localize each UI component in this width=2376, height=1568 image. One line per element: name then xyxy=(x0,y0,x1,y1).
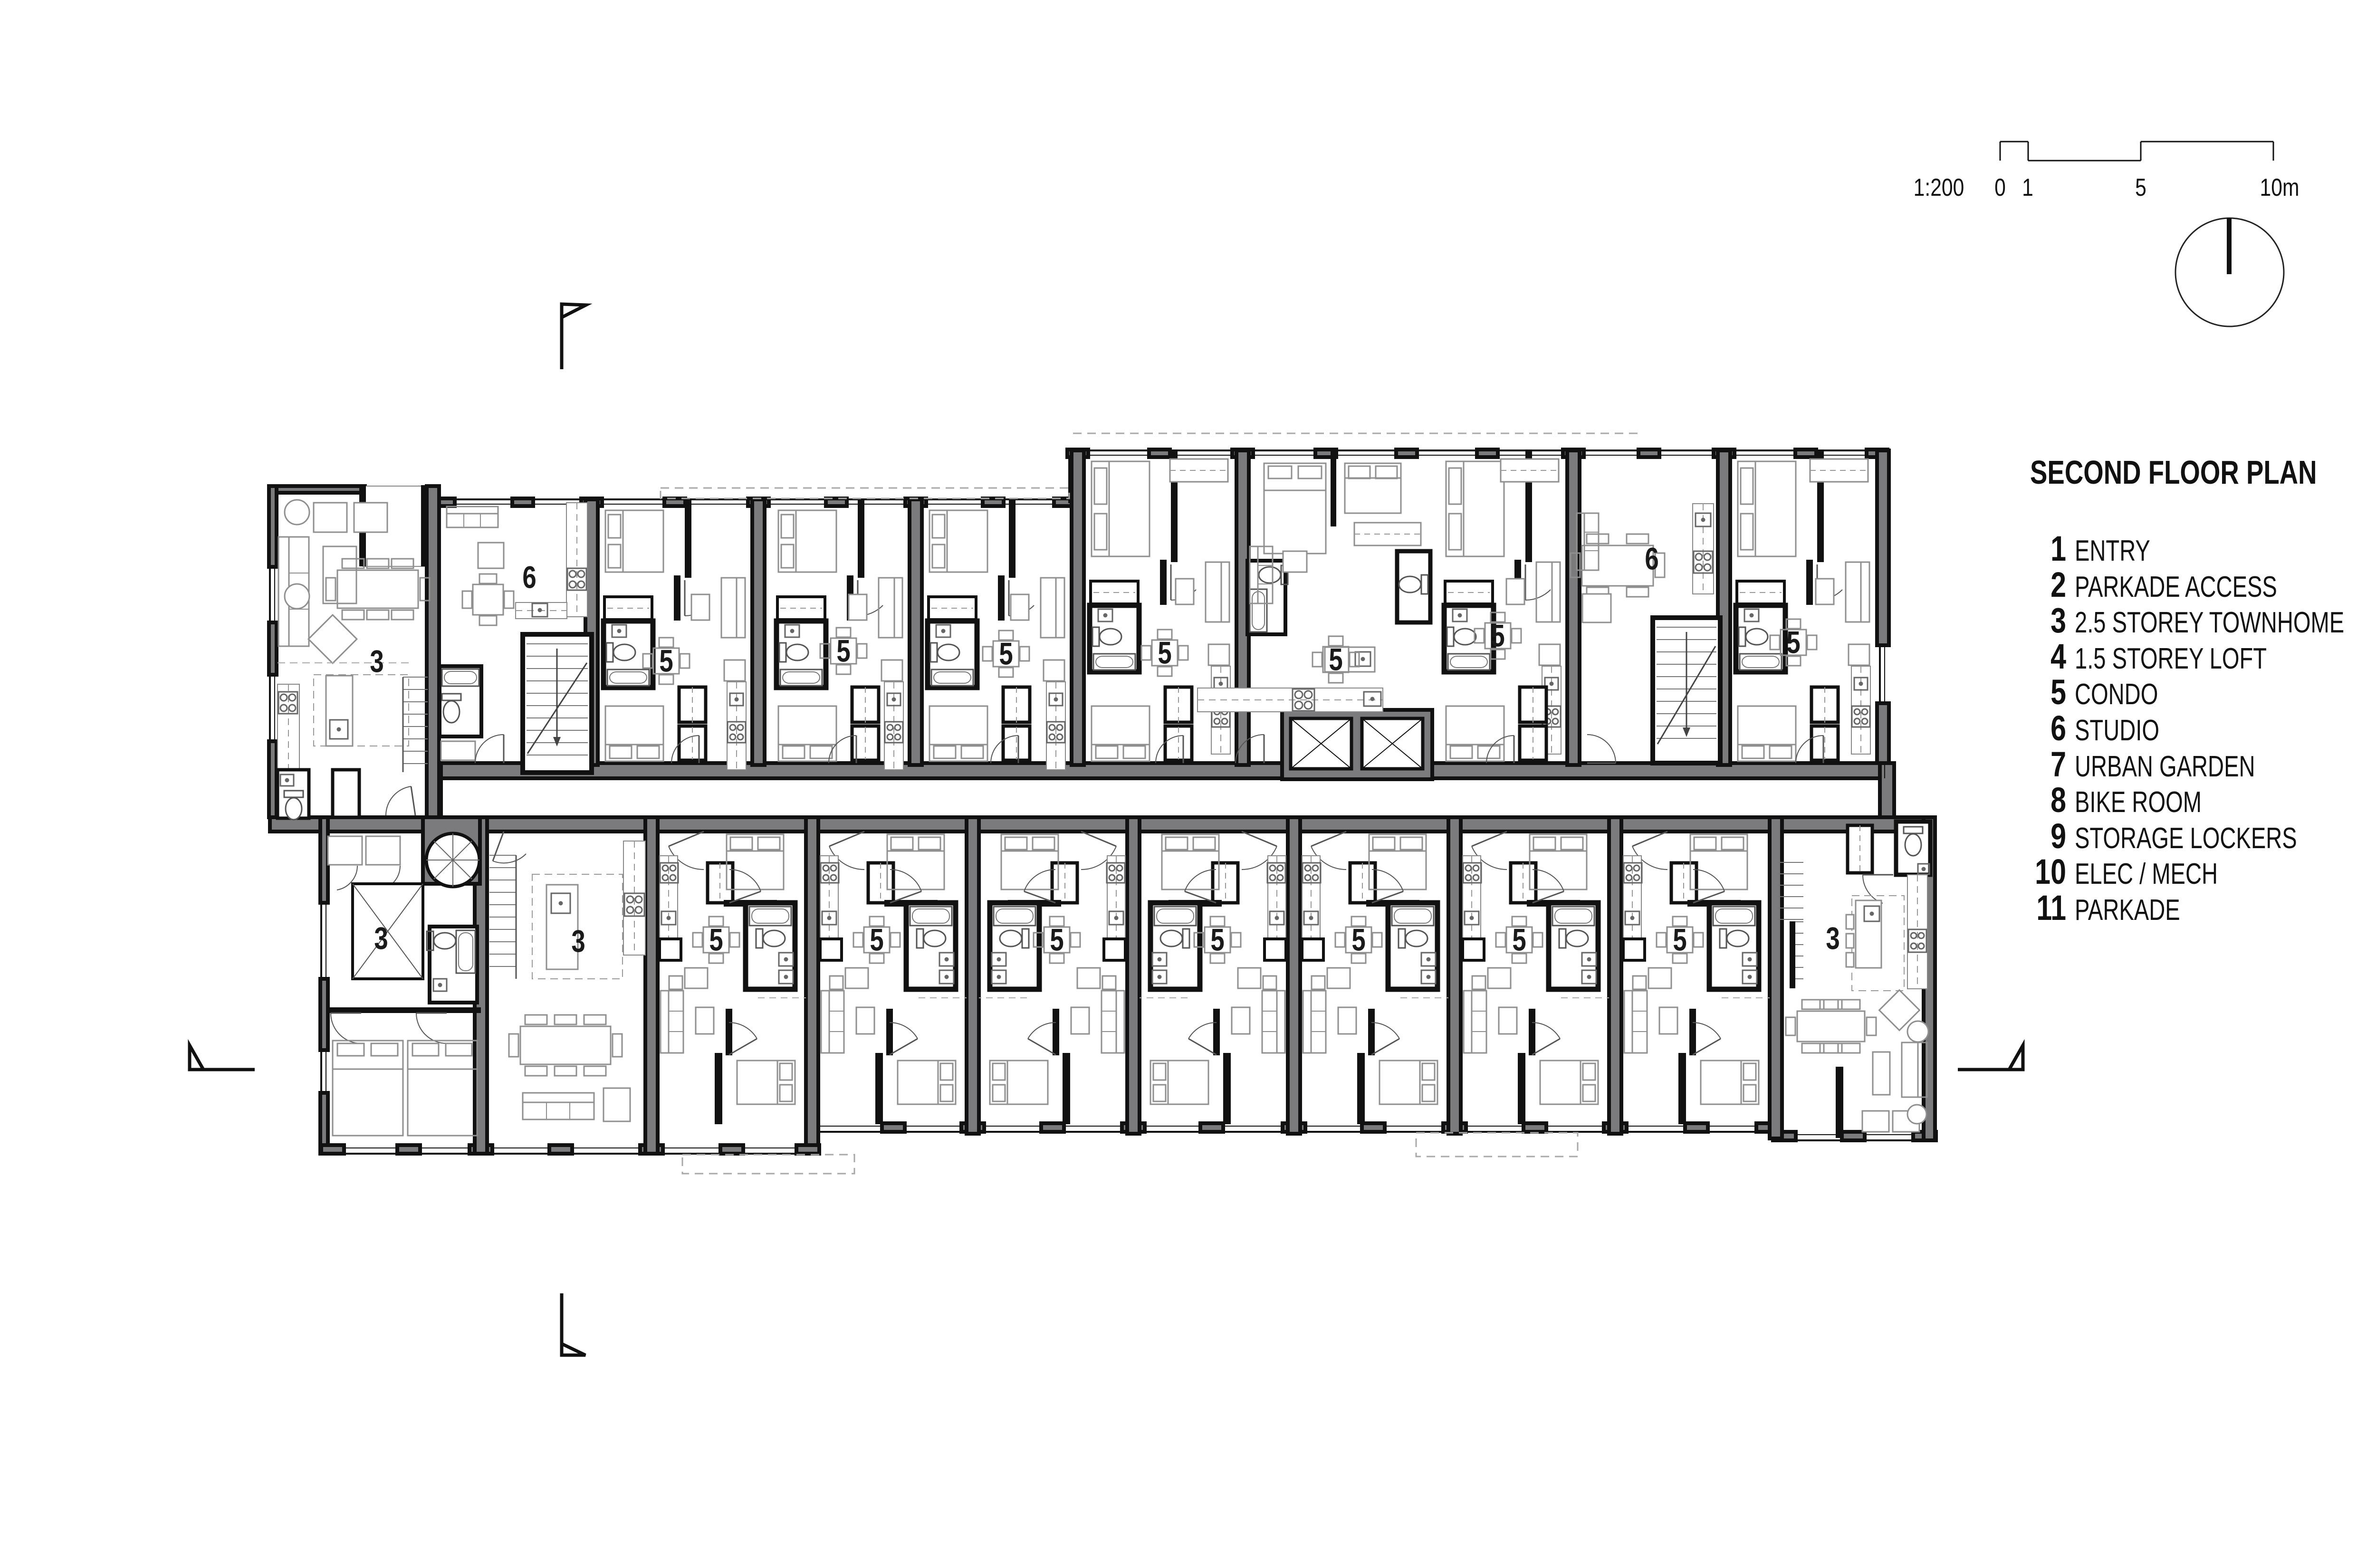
svg-text:3: 3 xyxy=(571,924,585,959)
svg-text:ENTRY: ENTRY xyxy=(2075,534,2150,567)
svg-text:6: 6 xyxy=(1645,541,1658,576)
svg-text:URBAN GARDEN: URBAN GARDEN xyxy=(2075,750,2255,783)
svg-text:5: 5 xyxy=(1786,625,1800,660)
svg-text:6: 6 xyxy=(2050,709,2066,748)
svg-text:3: 3 xyxy=(2050,601,2066,641)
svg-text:3: 3 xyxy=(370,644,383,679)
svg-text:5: 5 xyxy=(999,636,1013,671)
svg-text:5: 5 xyxy=(836,633,850,669)
svg-text:10m: 10m xyxy=(2260,174,2299,201)
svg-text:5: 5 xyxy=(1210,922,1224,957)
svg-text:1:200: 1:200 xyxy=(1914,174,1964,201)
svg-text:5: 5 xyxy=(2135,174,2146,201)
svg-text:PARKADE ACCESS: PARKADE ACCESS xyxy=(2075,570,2277,603)
svg-text:3: 3 xyxy=(1826,921,1839,956)
svg-text:0: 0 xyxy=(1994,174,2006,201)
svg-text:SECOND FLOOR PLAN: SECOND FLOOR PLAN xyxy=(2030,454,2317,491)
svg-text:5: 5 xyxy=(870,922,883,957)
svg-text:5: 5 xyxy=(1050,922,1063,957)
svg-text:6: 6 xyxy=(522,560,536,595)
svg-text:2.5 STOREY TOWNHOME: 2.5 STOREY TOWNHOME xyxy=(2075,606,2344,639)
svg-text:5: 5 xyxy=(1351,922,1365,957)
svg-text:5: 5 xyxy=(1491,618,1504,653)
svg-text:STORAGE LOCKERS: STORAGE LOCKERS xyxy=(2075,822,2297,855)
svg-text:11: 11 xyxy=(2036,889,2066,928)
svg-text:BIKE ROOM: BIKE ROOM xyxy=(2075,785,2202,819)
svg-text:1: 1 xyxy=(2050,529,2066,569)
svg-text:CONDO: CONDO xyxy=(2075,678,2158,711)
svg-text:5: 5 xyxy=(1673,922,1686,957)
svg-text:5: 5 xyxy=(2050,673,2066,712)
svg-text:2: 2 xyxy=(2050,565,2066,605)
svg-text:5: 5 xyxy=(659,643,673,679)
svg-text:5: 5 xyxy=(709,922,723,957)
svg-text:5: 5 xyxy=(1512,922,1526,957)
svg-text:ELEC / MECH: ELEC / MECH xyxy=(2075,857,2218,890)
svg-text:10: 10 xyxy=(2035,852,2066,892)
svg-text:4: 4 xyxy=(2050,637,2066,677)
svg-text:5: 5 xyxy=(1158,635,1171,670)
svg-text:7: 7 xyxy=(2050,745,2066,784)
svg-text:PARKADE: PARKADE xyxy=(2075,893,2180,927)
svg-text:3: 3 xyxy=(374,921,388,956)
svg-text:8: 8 xyxy=(2050,781,2066,820)
svg-text:9: 9 xyxy=(2050,817,2066,856)
svg-text:1.5 STOREY LOFT: 1.5 STOREY LOFT xyxy=(2075,642,2267,675)
svg-text:STUDIO: STUDIO xyxy=(2075,714,2159,747)
svg-text:1: 1 xyxy=(2022,174,2033,201)
svg-text:5: 5 xyxy=(1329,642,1342,677)
